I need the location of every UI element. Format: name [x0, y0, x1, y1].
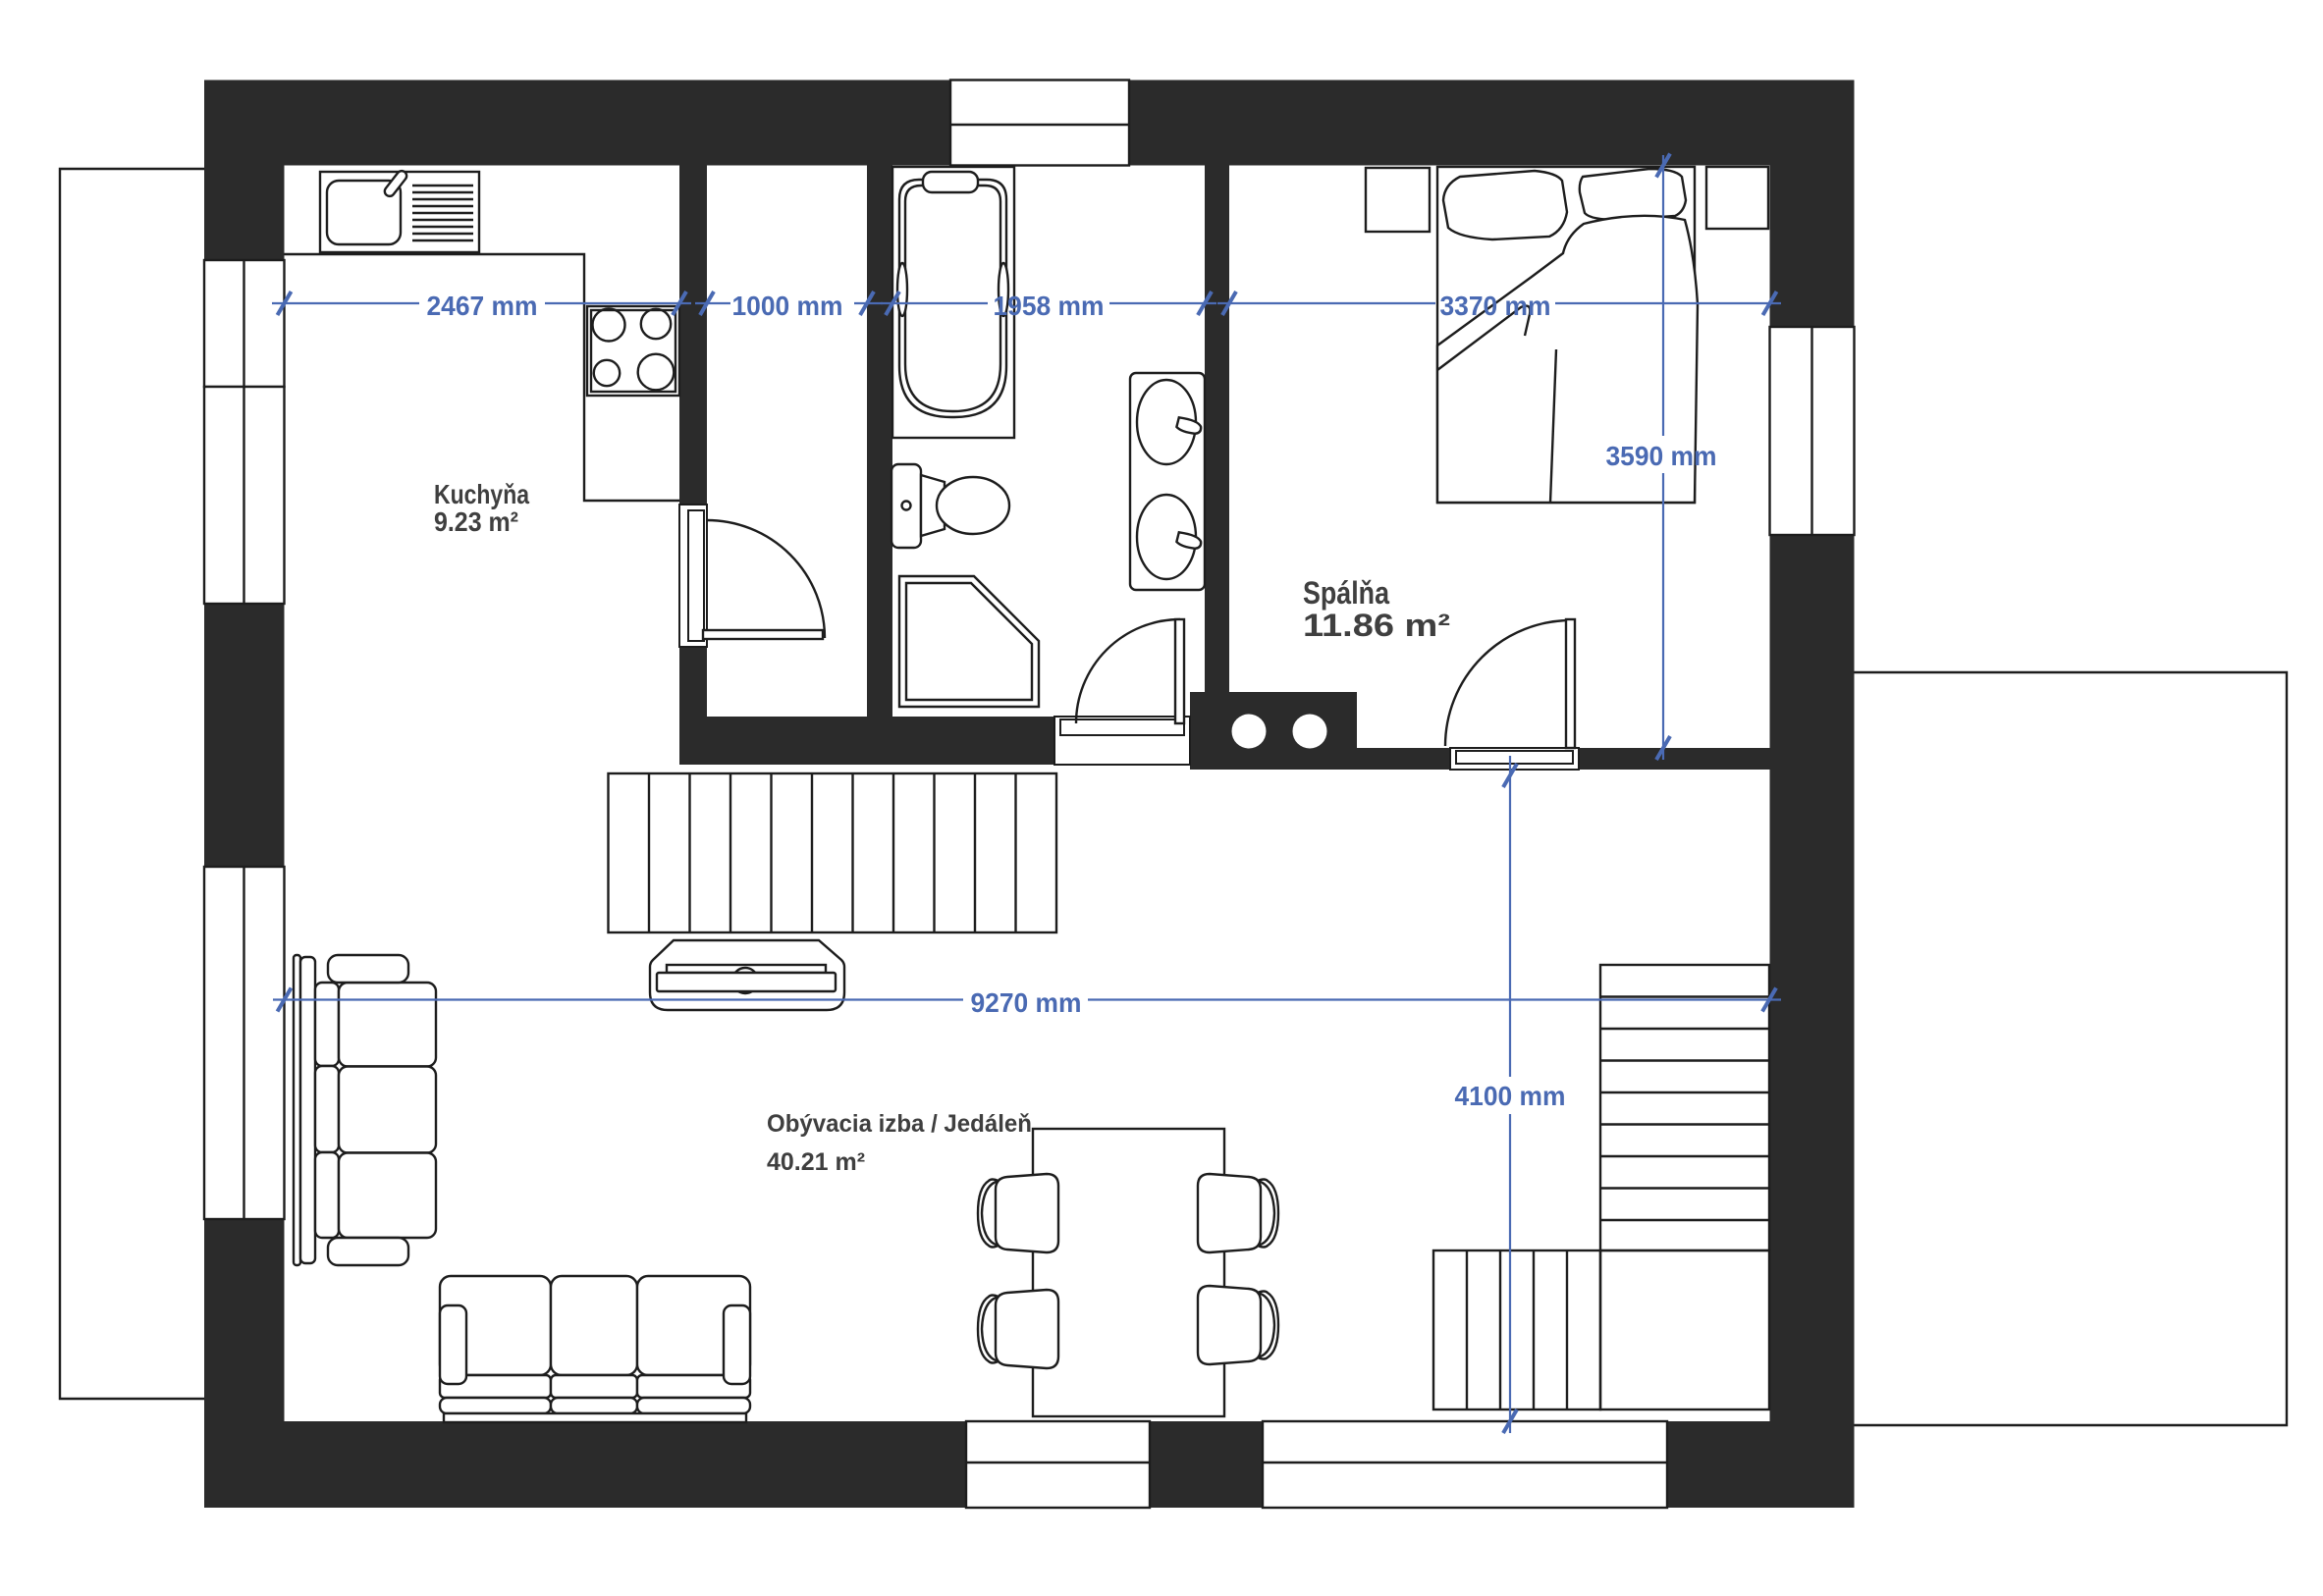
svg-text:Obývacia izba / Jedáleň: Obývacia izba / Jedáleň [767, 1110, 1032, 1138]
svg-text:2467 mm: 2467 mm [427, 291, 538, 321]
svg-text:11.86 m²: 11.86 m² [1303, 608, 1450, 643]
svg-text:4100 mm: 4100 mm [1455, 1081, 1566, 1111]
svg-text:40.21 m²: 40.21 m² [767, 1148, 865, 1176]
svg-text:Spálňa: Spálňa [1303, 575, 1389, 611]
svg-text:Kuchyňa: Kuchyňa [434, 479, 529, 509]
svg-text:9.23 m²: 9.23 m² [434, 506, 518, 537]
svg-text:1000 mm: 1000 mm [732, 291, 843, 321]
svg-text:3370 mm: 3370 mm [1440, 291, 1551, 321]
svg-text:1958 mm: 1958 mm [994, 291, 1105, 321]
svg-text:9270 mm: 9270 mm [971, 987, 1082, 1018]
svg-text:3590 mm: 3590 mm [1606, 441, 1717, 471]
